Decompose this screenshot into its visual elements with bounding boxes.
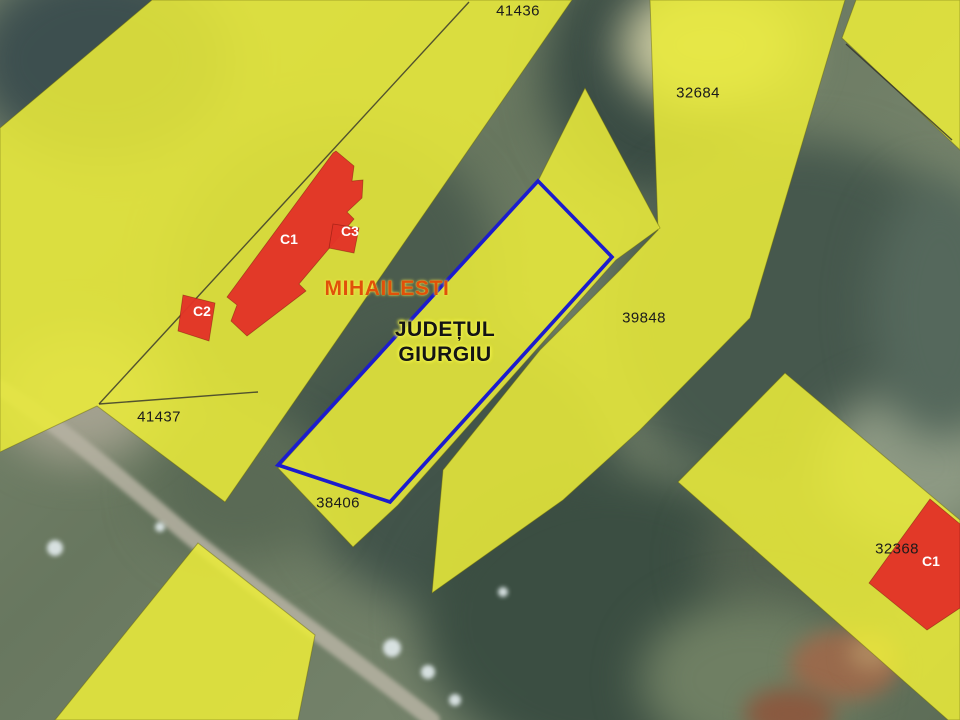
- county-label-line2: GIURGIU: [395, 342, 495, 367]
- building-label: C2: [193, 303, 211, 319]
- parcel-label: 41436: [496, 3, 540, 20]
- town-label: MIHAILESTI: [325, 277, 450, 301]
- parcel-label: 38406: [316, 495, 360, 512]
- parcel-label: 32684: [676, 85, 720, 102]
- building-label: C1: [922, 553, 940, 569]
- building-label: C1: [280, 231, 298, 247]
- parcel-polygon-top-right[interactable]: [842, 0, 960, 150]
- parcel-label: 41437: [137, 409, 181, 426]
- parcel-polygon-bottom-left[interactable]: [55, 543, 315, 720]
- parcel-label: 39848: [622, 310, 666, 327]
- parcel-label: 32368: [875, 541, 919, 558]
- county-label-line1: JUDEȚUL: [395, 317, 495, 342]
- building-label: C3: [341, 223, 359, 239]
- map-canvas[interactable]: 41436 32684 39848 41437 38406 32368 C1 C…: [0, 0, 960, 720]
- county-label: JUDEȚUL GIURGIU: [395, 317, 495, 367]
